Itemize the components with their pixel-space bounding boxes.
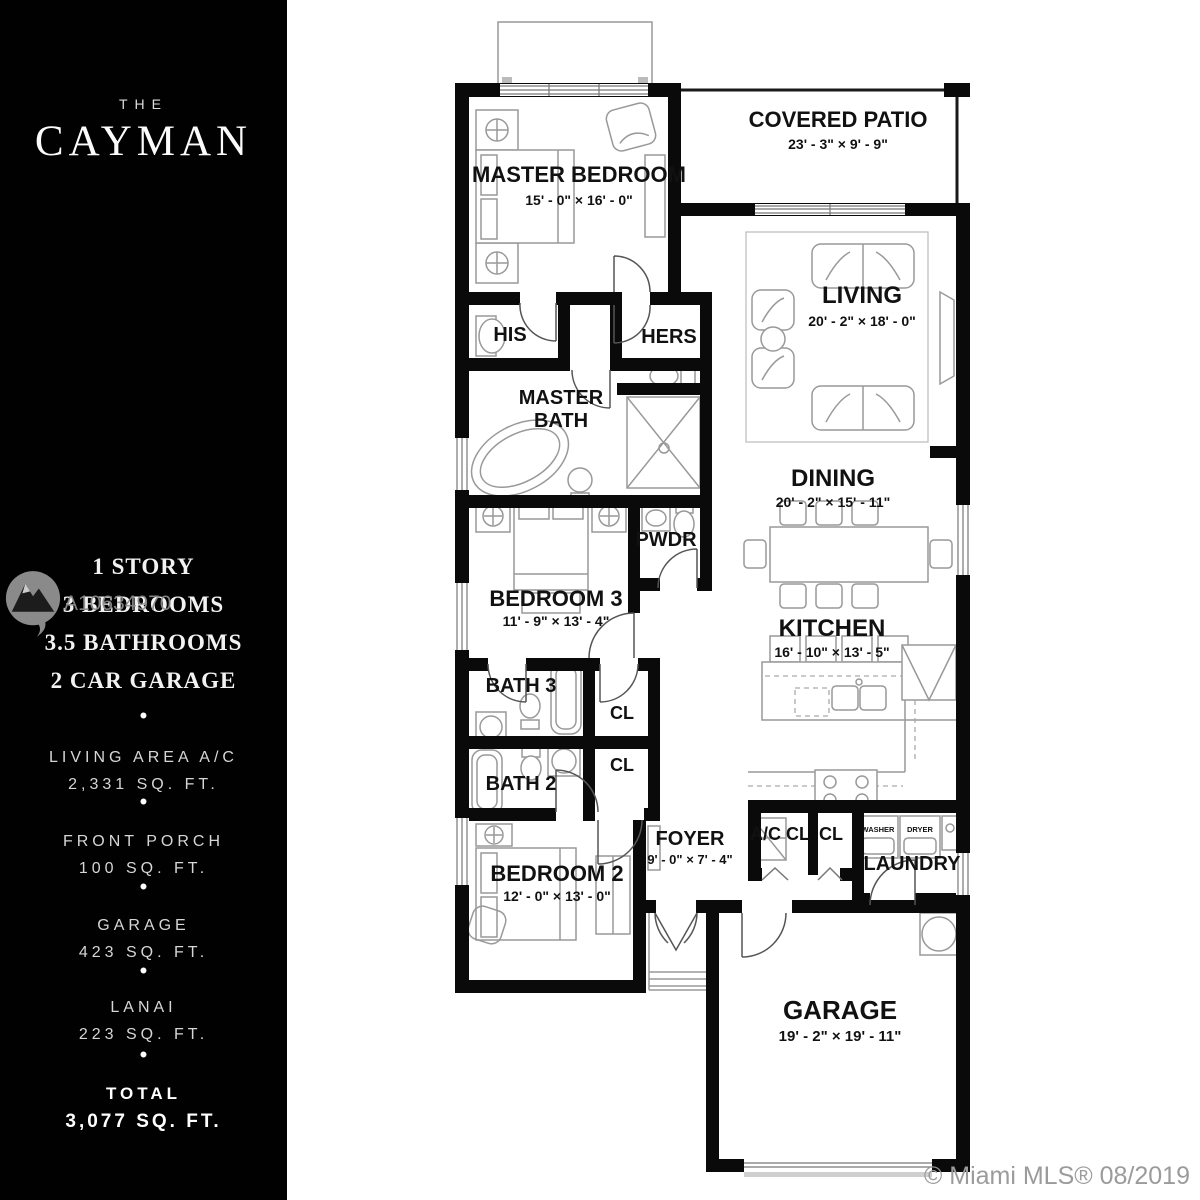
- room-label-living: LIVING: [822, 282, 902, 309]
- room-dims-garage: 19' - 2" × 19' - 11": [779, 1028, 902, 1045]
- room-dims-bedroom-3: 11' - 9" × 13' - 4": [503, 613, 610, 629]
- room-label-bedroom-3: BEDROOM 3: [489, 586, 622, 611]
- label-closet-1: CL: [610, 703, 634, 723]
- room-label-master-bedroom: MASTER BEDROOM: [472, 162, 686, 187]
- bullet-separator: •: [0, 966, 287, 976]
- watermark-mls-id: A10634970: [64, 592, 171, 616]
- total-label: TOTAL: [0, 1080, 287, 1107]
- bullet-separator: •: [0, 882, 287, 892]
- furniture-dining: [744, 501, 952, 608]
- feature-garage: 2 CAR GARAGE: [0, 662, 287, 700]
- stat-label: LIVING AREA A/C: [0, 744, 287, 771]
- stat-label: GARAGE: [0, 912, 287, 939]
- entry-porch: [649, 913, 706, 990]
- room-dims-dining: 20' - 2" × 15' - 11": [776, 494, 891, 510]
- label-closet-2: CL: [610, 755, 634, 775]
- label-pwdr: PWDR: [635, 529, 697, 551]
- room-dims-living: 20' - 2" × 18' - 0": [808, 313, 916, 329]
- room-label-foyer: FOYER: [656, 828, 725, 850]
- furniture-living: [746, 232, 954, 442]
- bullet-separator: •: [0, 711, 287, 721]
- label-dryer: DRYER: [907, 825, 934, 834]
- brand-name: CAYMAN: [0, 117, 287, 166]
- total-value: 3,077 SQ. FT.: [0, 1107, 287, 1136]
- mls-watermark: A10634970: [4, 569, 171, 639]
- brand-pre: THE: [0, 96, 287, 112]
- furniture-bath-3: [476, 662, 581, 742]
- furniture-kitchen: [748, 636, 957, 812]
- floor-plan-page: MASTER BEDROOM 15' - 0" × 16' - 0" COVER…: [0, 0, 1200, 1200]
- top-porch-slab: [498, 22, 652, 84]
- stat-label: LANAI: [0, 994, 287, 1021]
- label-hers-closet: HERS: [641, 326, 697, 348]
- room-label-garage: GARAGE: [783, 995, 897, 1025]
- room-label-dining: DINING: [791, 465, 875, 492]
- label-master-bath-1: MASTER: [519, 387, 604, 409]
- stat-lanai: LANAI 223 SQ. FT.: [0, 994, 287, 1048]
- label-master-bath-2: BATH: [534, 410, 588, 432]
- room-dims-kitchen: 16' - 10" × 13' - 5": [774, 644, 889, 660]
- brand-block: THE CAYMAN: [0, 96, 287, 166]
- stat-total: TOTAL 3,077 SQ. FT.: [0, 1080, 287, 1136]
- furniture-garage: [920, 913, 958, 955]
- label-closet-3: CL: [819, 824, 843, 844]
- room-dims-foyer: 9' - 0" × 7' - 4": [647, 852, 732, 867]
- mls-attribution: © Miami MLS® 08/2019: [924, 1162, 1190, 1191]
- room-label-kitchen: KITCHEN: [779, 615, 886, 642]
- label-ac-closet: A/C CL: [750, 824, 810, 844]
- room-label-covered-patio: COVERED PATIO: [749, 107, 928, 132]
- room-label-bedroom-2: BEDROOM 2: [490, 861, 623, 886]
- label-bath-3: BATH 3: [486, 675, 557, 697]
- room-dims-master-bedroom: 15' - 0" × 16' - 0": [525, 192, 633, 208]
- label-washer: WASHER: [862, 825, 896, 834]
- room-dims-bedroom-2: 12' - 0" × 13' - 0": [503, 888, 611, 904]
- driveway-edge: [744, 1172, 932, 1177]
- room-dims-covered-patio: 23' - 3" × 9' - 9": [788, 136, 888, 152]
- mountain-logo-icon: [4, 569, 62, 639]
- stat-label: FRONT PORCH: [0, 828, 287, 855]
- bullet-separator: •: [0, 797, 287, 807]
- label-bath-2: BATH 2: [486, 773, 557, 795]
- label-laundry: LAUNDRY: [863, 853, 961, 875]
- bullet-separator: •: [0, 1050, 287, 1060]
- label-his-closet: HIS: [493, 324, 526, 346]
